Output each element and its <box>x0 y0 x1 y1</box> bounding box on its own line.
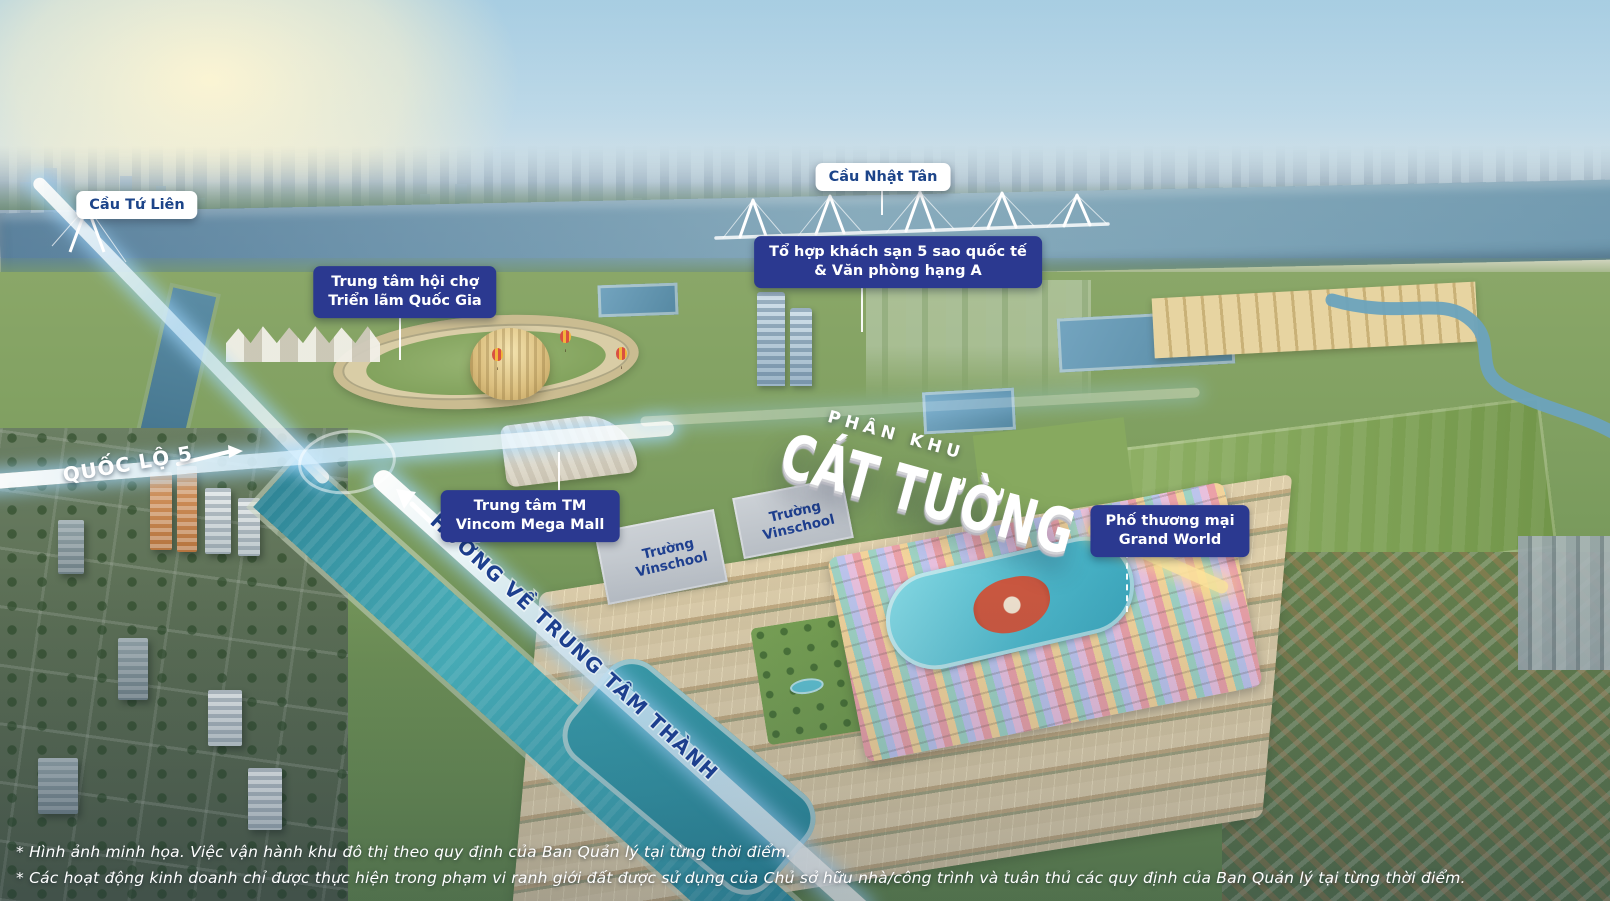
city-direction-road-name: HƯỚNG VỀ TRUNG TÂM THÀNH PHỐ <box>0 0 730 791</box>
label-expo: Trung tâm hội chợ Triển lãm Quốc Gia <box>313 266 496 318</box>
label-line2: & Văn phòng hạng A <box>769 262 1027 281</box>
disclaimer-line-2: * Các hoạt động kinh doanh chỉ được thực… <box>16 869 1466 887</box>
meandering-river <box>1332 300 1610 432</box>
label-cau-tu-lien: Cầu Tứ Liên <box>76 191 197 219</box>
label-line1: Phố thương mại <box>1105 512 1234 531</box>
city-direction-text: HƯỚNG VỀ TRUNG TÂM THÀNH PHỐ <box>0 0 730 791</box>
label-text: Cầu Nhật Tân <box>829 169 938 185</box>
label-hotel-office: Tổ hợp khách sạn 5 sao quốc tế & Văn phò… <box>754 236 1042 288</box>
pointer-line-expo <box>399 312 401 360</box>
pointer-line-hotel <box>861 284 863 332</box>
pointer-line-nhat-tan <box>881 189 883 215</box>
stage: HƯỚNG VỀ TRUNG TÂM THÀNH PHỐ PHÂN KHU CÁ… <box>0 0 1610 901</box>
label-text: Cầu Tứ Liên <box>89 197 184 213</box>
disclaimer-line-1: * Hình ảnh minh họa. Việc vận hành khu đ… <box>16 843 791 861</box>
label-line2: Vincom Mega Mall <box>456 516 605 535</box>
pointer-line-grand-world <box>1126 552 1128 612</box>
nhat-tan-bridge <box>716 192 1108 238</box>
label-line1: Trung tâm hội chợ <box>328 273 481 292</box>
label-line1: Trung tâm TM <box>456 497 605 516</box>
label-vincom: Trung tâm TM Vincom Mega Mall <box>441 490 620 542</box>
label-line2: Triển lãm Quốc Gia <box>328 292 481 311</box>
label-cau-nhat-tan: Cầu Nhật Tân <box>816 163 951 191</box>
label-line2: Grand World <box>1105 531 1234 550</box>
label-line1: Tổ hợp khách sạn 5 sao quốc tế <box>769 243 1027 262</box>
label-grand-world: Phố thương mại Grand World <box>1090 505 1249 557</box>
